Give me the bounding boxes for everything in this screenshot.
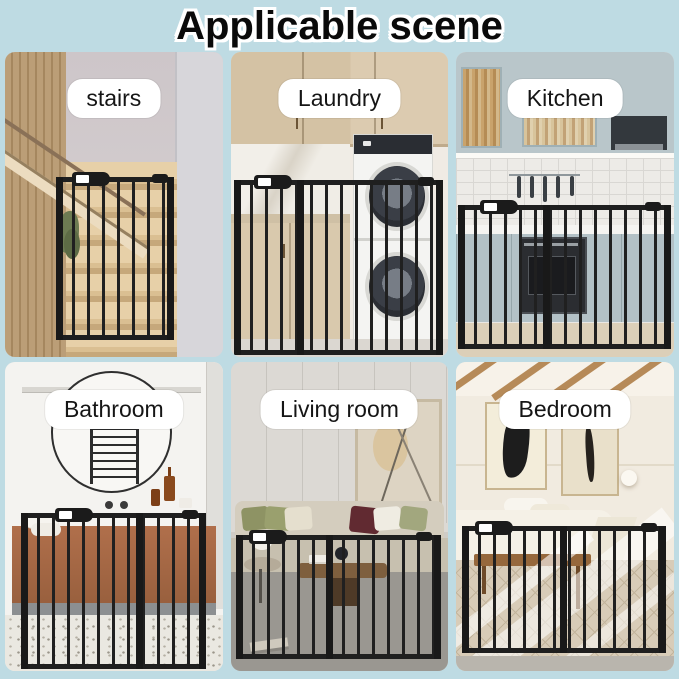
- gate-post-right: [199, 513, 206, 668]
- gate-post-middle: [136, 513, 143, 668]
- scene-label-stairs: stairs: [67, 79, 160, 118]
- gate-post-left: [56, 177, 63, 340]
- faucet-knob: [120, 501, 128, 509]
- scene-panel-bedroom: Bedroom: [456, 362, 674, 671]
- gate-post-right: [434, 535, 441, 659]
- gate-post-left: [462, 526, 469, 653]
- dispenser-pump: [168, 467, 171, 476]
- scene-panel-living-room: Living room: [231, 362, 449, 671]
- safety-gate: [237, 535, 439, 659]
- hood-vent: [615, 144, 663, 150]
- gate-latch-button: [484, 203, 497, 211]
- gate-bars: [235, 185, 442, 350]
- scene-label-bathroom: Bathroom: [45, 390, 183, 429]
- floor-strip: [456, 656, 674, 671]
- scene-label-laundry: Laundry: [279, 79, 400, 118]
- pillow-cream: [284, 506, 313, 531]
- safety-gate: [463, 526, 665, 653]
- page-title: Applicable scene: [0, 0, 679, 52]
- gate-post-left: [236, 535, 243, 659]
- gate-post-middle: [560, 526, 567, 653]
- gate-post-right: [664, 205, 671, 349]
- hanging-utensil: [543, 176, 547, 202]
- jar: [179, 498, 192, 508]
- gate-hinge: [641, 523, 657, 532]
- safety-gate: [22, 513, 205, 668]
- gate-post-left: [21, 513, 28, 668]
- hanging-utensil: [530, 176, 534, 198]
- art-abstract-shape: [584, 426, 595, 482]
- gate-bars: [57, 182, 172, 335]
- safety-gate: [459, 205, 670, 349]
- gate-hinge: [416, 532, 432, 541]
- gate-latch-button: [59, 511, 72, 519]
- gate-latch-button: [479, 524, 492, 532]
- hanging-utensil: [517, 176, 521, 198]
- gate-latch: [72, 172, 110, 186]
- scene-panel-stairs: stairs: [5, 52, 223, 357]
- gate-latch: [254, 175, 292, 189]
- pillow-white: [373, 506, 402, 531]
- gate-latch: [475, 521, 513, 535]
- scene-panel-laundry: Laundry: [231, 52, 449, 357]
- art-circle: [373, 422, 408, 471]
- gate-bars: [237, 540, 439, 654]
- gate-hinge: [152, 174, 168, 183]
- gate-latch-button: [258, 178, 271, 186]
- safety-gate: [57, 177, 172, 340]
- hanging-utensil: [556, 176, 560, 198]
- gate-post-right: [167, 177, 174, 340]
- soap-dispenser: [164, 476, 175, 501]
- safety-gate: [235, 180, 442, 355]
- pillow-sage: [399, 506, 429, 532]
- gate-latch: [249, 530, 287, 544]
- scene-panel-bathroom: Bathroom: [5, 362, 223, 671]
- faucet-knob: [105, 501, 113, 509]
- gate-post-middle: [326, 535, 333, 659]
- scene-label-bedroom: Bedroom: [499, 390, 630, 429]
- gate-post-left: [458, 205, 465, 349]
- gate-post-left: [234, 180, 241, 355]
- gate-post-middle: [543, 205, 550, 349]
- hanging-utensil: [570, 176, 574, 196]
- amber-bottle: [151, 489, 160, 506]
- gate-hinge: [182, 510, 198, 519]
- gate-latch: [480, 200, 518, 214]
- gate-post-right: [659, 526, 666, 653]
- gate-latch-button: [253, 533, 266, 541]
- scene-label-living-room: Living room: [261, 390, 418, 429]
- right-wall: [175, 52, 223, 357]
- scene-grid: stairs: [5, 52, 674, 671]
- gate-hinge: [645, 202, 661, 211]
- gate-bars: [22, 518, 205, 663]
- scene-label-kitchen: Kitchen: [508, 79, 623, 118]
- gate-latch-button: [76, 175, 89, 183]
- gate-post-middle: [297, 180, 304, 355]
- gate-latch: [55, 508, 93, 522]
- gate-bars: [459, 210, 670, 344]
- washer-display: [363, 141, 371, 146]
- gate-post-right: [436, 180, 443, 355]
- wall-lamp: [621, 470, 637, 486]
- scene-panel-kitchen: Kitchen: [456, 52, 674, 357]
- gate-hinge: [418, 177, 434, 186]
- glass-cabinet: [461, 67, 502, 147]
